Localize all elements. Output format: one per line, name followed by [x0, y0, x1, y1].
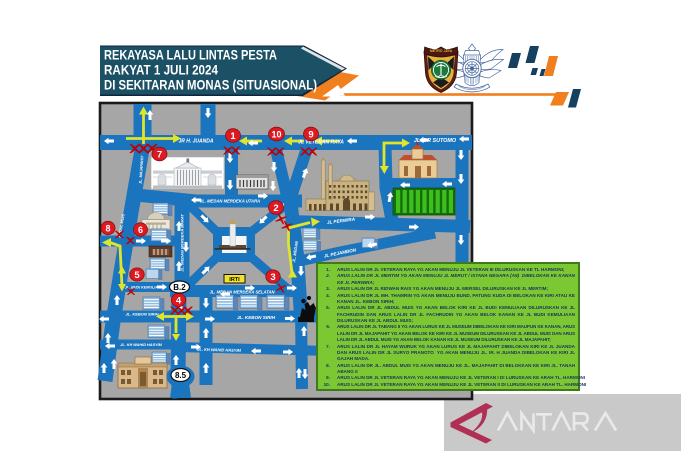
svg-text:JL. KEBON SIRIH: JL. KEBON SIRIH — [125, 312, 158, 317]
svg-text:4: 4 — [176, 296, 182, 307]
svg-text:8.5: 8.5 — [175, 371, 187, 380]
svg-text:RAKYAT 1 JULI 2024: RAKYAT 1 JULI 2024 — [104, 62, 218, 78]
svg-text:JR H. JUANDA: JR H. JUANDA — [178, 139, 213, 145]
svg-text:DI SEKITARAN MONAS (SITUASIONA: DI SEKITARAN MONAS (SITUASIONAL) — [104, 77, 317, 93]
svg-text:JL. KH WAHID HASYIM: JL. KH WAHID HASYIM — [120, 343, 162, 347]
svg-text:B.2: B.2 — [173, 283, 186, 292]
svg-text:REKAYASA LALU LINTAS PESTA: REKAYASA LALU LINTAS PESTA — [104, 47, 277, 63]
svg-text:JL. MEDAN MERDEKA BARAT: JL. MEDAN MERDEKA BARAT — [180, 214, 185, 272]
svg-text:JL. BUDI KEMULIAAN: JL. BUDI KEMULIAAN — [125, 285, 164, 289]
svg-text:JL. KEBON SIRIH: JL. KEBON SIRIH — [237, 315, 276, 320]
svg-text:7: 7 — [157, 150, 162, 161]
svg-text:IRTI: IRTI — [229, 277, 240, 283]
svg-text:JL. DR SUTOMO: JL. DR SUTOMO — [414, 138, 457, 144]
svg-text:9: 9 — [308, 130, 313, 141]
svg-text:6: 6 — [138, 225, 143, 235]
svg-text:10: 10 — [271, 130, 281, 140]
svg-text:5: 5 — [134, 270, 140, 281]
svg-text:2: 2 — [273, 203, 278, 214]
svg-text:8: 8 — [105, 224, 110, 234]
svg-text:JL. MEDAN MERDEKA UTARA: JL. MEDAN MERDEKA UTARA — [200, 199, 260, 204]
svg-text:JL VETERAN RAYA: JL VETERAN RAYA — [298, 140, 344, 146]
svg-text:METRO JAYA: METRO JAYA — [430, 49, 453, 53]
svg-text:3: 3 — [270, 272, 275, 283]
svg-text:JL. MEDAN MERDEKA SELATAN: JL. MEDAN MERDEKA SELATAN — [209, 289, 275, 294]
svg-text:1: 1 — [230, 131, 236, 142]
